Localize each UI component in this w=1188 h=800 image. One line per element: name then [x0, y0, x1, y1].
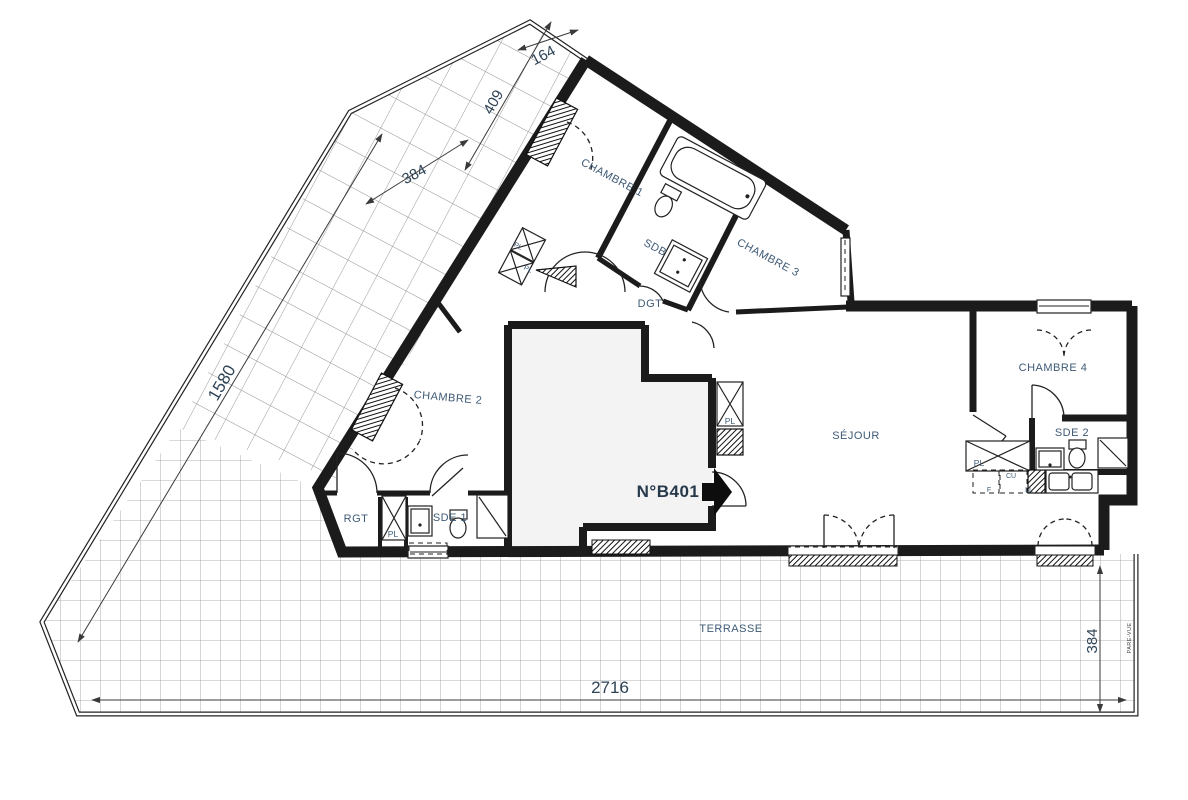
kitchen-door-shutter	[1037, 555, 1093, 566]
room-label-chambre3: CHAMBRE 3	[735, 237, 801, 280]
sde2-shower	[1098, 438, 1128, 468]
room-label-terrasse: TERRASSE	[699, 623, 762, 635]
stair-landing	[508, 325, 712, 552]
room-label-dgt: DGT	[638, 298, 663, 310]
closet-label-palier: PL	[725, 416, 736, 426]
kitchen-labels: CU F LL	[987, 473, 1033, 494]
closet-label-rgt: PL	[388, 529, 399, 539]
floor-plan-page: CHAMBRE 1 SDB CHAMBRE 3 DGT CHAMBRE 2 SÉ…	[0, 0, 1188, 800]
kitchen-door-sill	[1035, 546, 1095, 555]
room-label-chambre1: CHAMBRE 1	[579, 157, 645, 200]
sde1-shower	[477, 495, 508, 538]
sde2-cabinet	[1036, 448, 1064, 470]
sde2-toilet-icon	[1069, 440, 1086, 468]
room-label-chambre2: CHAMBRE 2	[413, 389, 482, 407]
wing-closet-shelf	[536, 266, 576, 287]
kitchen-label-f: F	[987, 487, 991, 494]
landing-sill	[592, 540, 650, 554]
room-label-sejour: SÉJOUR	[832, 429, 880, 442]
sdb-toilet-icon	[651, 184, 682, 221]
sde1-cabinet	[408, 506, 432, 536]
floor-plan-drawing: CHAMBRE 1 SDB CHAMBRE 3 DGT CHAMBRE 2 SÉ…	[0, 0, 1188, 800]
closet-label-kitchen: PL	[974, 458, 985, 468]
unit-number-label: N°B401	[637, 482, 700, 501]
room-label-sde1: SDE 1	[433, 512, 467, 524]
sejour-door-shutter	[789, 555, 897, 566]
kitchen-sink	[1046, 470, 1098, 493]
wing-closet	[499, 228, 546, 285]
room-label-sde2: SDE 2	[1055, 427, 1089, 439]
pare-vue-label: PARE-VUE	[1127, 623, 1133, 654]
room-label-rgt: RGT	[344, 513, 369, 525]
kitchen-label-ll: LL	[1025, 487, 1033, 494]
dim-384-right: 384	[1084, 628, 1101, 653]
room-label-sdb: SDB	[642, 237, 669, 259]
kitchen-label-cu: CU	[1006, 473, 1016, 480]
room-label-chambre4: CHAMBRE 4	[1019, 362, 1088, 374]
dim-2716: 2716	[591, 678, 629, 697]
